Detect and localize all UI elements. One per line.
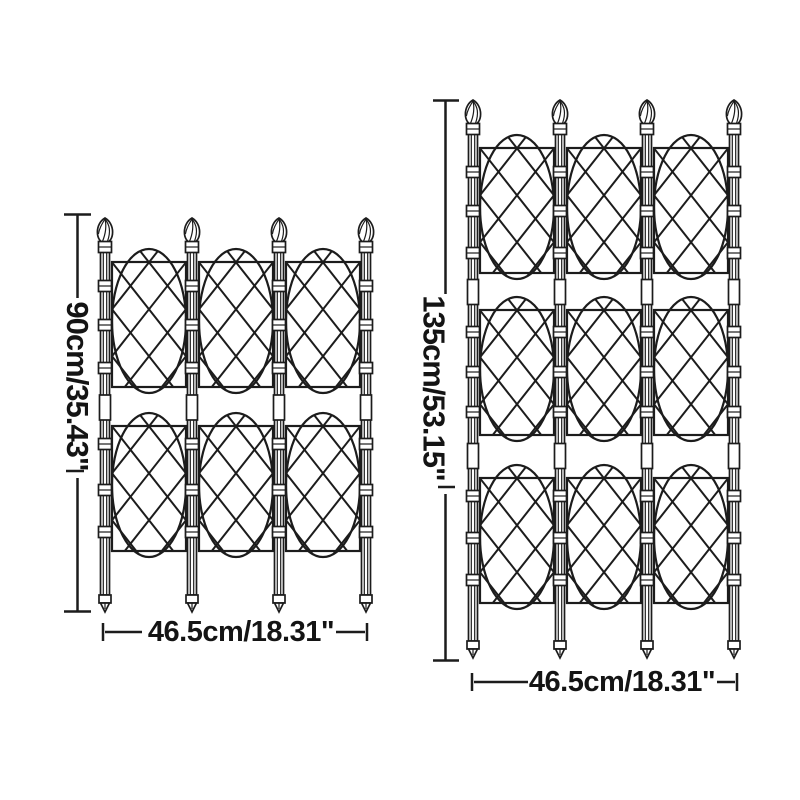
trellis-pole (97, 218, 112, 612)
large-trellis: 135cm/53.15" 46.5cm/18.31" (366, 100, 800, 698)
trellis-pole (184, 218, 199, 612)
trellis-pole (358, 218, 373, 612)
trellis-pole (726, 100, 741, 658)
large-trellis-width-label: 46.5cm/18.31" (529, 666, 715, 698)
small-trellis-height-dimension: 90cm/35.43" (60, 215, 95, 612)
trellis-dimension-diagram: 90cm/35.43" 46.5cm/18.31" (0, 0, 800, 800)
small-trellis-height-label: 90cm/35.43" (60, 301, 95, 470)
small-trellis-width-dimension: 46.5cm/18.31" (103, 616, 367, 648)
trellis-pole (552, 100, 567, 658)
trellis-pole (271, 218, 286, 612)
trellis-pole (465, 100, 480, 658)
large-trellis-height-label: 135cm/53.15" (417, 295, 452, 480)
small-trellis: 90cm/35.43" 46.5cm/18.31" (0, 215, 474, 649)
small-trellis-width-label: 46.5cm/18.31" (148, 616, 334, 648)
large-trellis-width-dimension: 46.5cm/18.31" (472, 666, 737, 698)
trellis-pole (639, 100, 654, 658)
large-trellis-height-dimension: 135cm/53.15" (417, 101, 460, 661)
